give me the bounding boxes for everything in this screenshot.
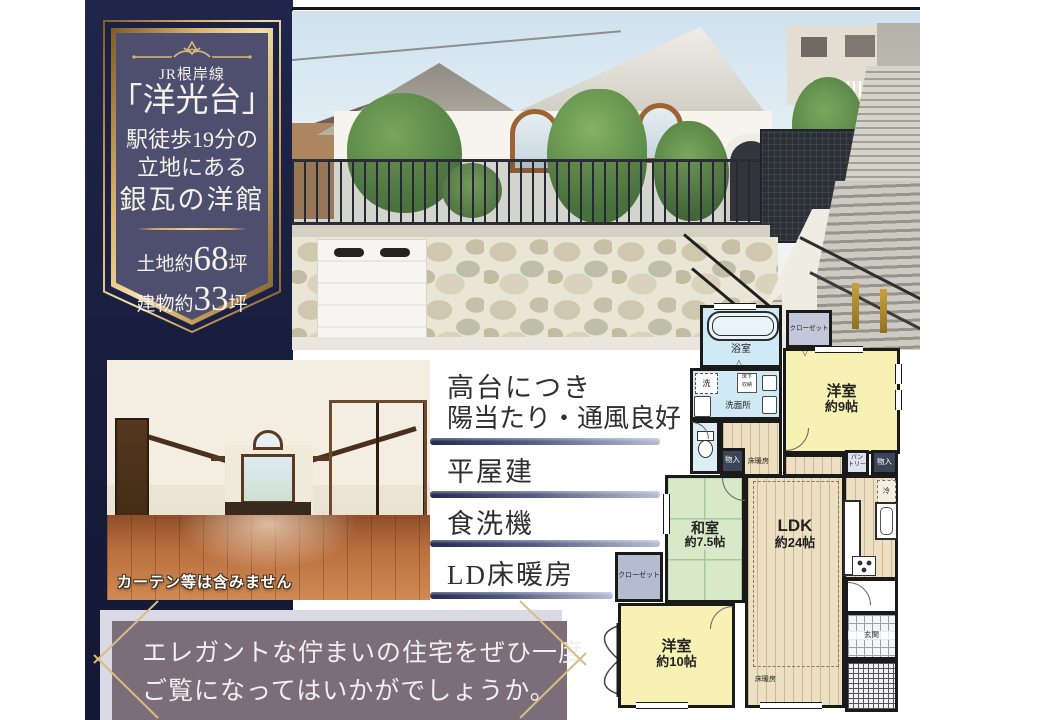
vent-mark: ▽ — [798, 348, 812, 357]
ldk-name: LDK — [745, 516, 845, 536]
building-prefix: 建物約 — [136, 294, 193, 315]
catch-copy: 銀瓦の洋館 — [103, 186, 281, 216]
west9-size: 約9帖 — [786, 400, 897, 415]
ldk-label: LDK 約24帖 — [745, 516, 845, 550]
bathtub-inner — [712, 316, 774, 336]
stove-icon — [852, 556, 876, 576]
garage-vent-shape — [380, 248, 410, 257]
kitchen-sink-unit — [875, 502, 898, 540]
walk-distance-line1: 駅徒歩19分の — [103, 128, 281, 152]
double-door-icon — [587, 623, 621, 697]
pantry-line1: パン — [848, 455, 866, 462]
land-unit: 坪 — [229, 254, 248, 275]
storage-box: 物入 — [720, 448, 745, 474]
west-room-9-label: 洋室 約9帖 — [786, 383, 897, 415]
window-mark — [895, 364, 902, 384]
flyer-canvas: JR根岸線 「洋光台」 駅徒歩19分の 立地にある 銀瓦の洋館 土地約68坪 建… — [0, 0, 1040, 720]
photo-caption: カーテン等は含みません — [117, 571, 293, 592]
washroom-label: 洗面所 — [717, 401, 759, 411]
far-window-shape — [241, 454, 295, 504]
vent-mark: △ — [732, 358, 746, 367]
toilet-bowl-icon — [698, 440, 713, 458]
far-window-shape — [845, 35, 875, 57]
floor-plan: 床暖房 床暖房 LDK 約24帖 浴室 クローゼット 洋室 約9帖 洗 — [590, 298, 908, 720]
station-name: 「洋光台」 — [103, 83, 281, 119]
closet-left-label: クローゼット — [618, 572, 660, 580]
far-window-shape — [801, 37, 827, 57]
closet-top-label: クローゼット — [789, 325, 829, 332]
storage-box: 物入 — [871, 450, 898, 475]
interior-photo: カーテン等は含みません — [107, 360, 430, 600]
underfloor-line1: 床下 — [738, 374, 756, 382]
window-mark — [760, 702, 822, 709]
window-mark — [636, 702, 688, 709]
ldk-size: 約24帖 — [745, 536, 845, 551]
feature-item-4: LD床暖房 — [447, 553, 574, 592]
land-value: 68 — [194, 239, 229, 278]
west-room-10-label: 洋室 約10帖 — [621, 638, 732, 670]
bath-label: 浴室 — [703, 344, 779, 356]
walk-distance-line2: 立地にある — [103, 156, 281, 180]
floor-heating-label: 床暖房 — [748, 458, 808, 466]
washer-icon: 洗 — [695, 373, 718, 394]
west9-name: 洋室 — [786, 383, 897, 400]
feature-item-3: 食洗機 — [447, 502, 534, 541]
underfloor-line2: 収納 — [738, 382, 756, 390]
floor-gloss-shape — [172, 515, 366, 575]
floor-heating-label: 床暖房 — [755, 676, 815, 684]
window-mark — [895, 390, 902, 410]
pantry-line2: トリー — [848, 462, 866, 469]
west10-size: 約10帖 — [621, 655, 732, 670]
west10-name: 洋室 — [621, 638, 732, 655]
fridge-icon: 冷 — [877, 480, 896, 504]
terrace-fence-shape — [292, 159, 764, 225]
building-unit: 坪 — [229, 294, 248, 315]
closet-top: クローゼット — [786, 310, 832, 348]
pantry-label: パン トリー — [848, 455, 866, 469]
title-banner: JR根岸線 「洋光台」 駅徒歩19分の 立地にある 銀瓦の洋館 土地約68坪 建… — [103, 20, 281, 333]
tatami-label: 和室 約7.5帖 — [668, 520, 742, 550]
feature-item-2: 平屋建 — [447, 450, 534, 489]
ornament-icon — [132, 36, 252, 66]
roof-main-shape — [502, 27, 770, 119]
rail-line-label: JR根岸線 — [103, 67, 281, 84]
vanity-icon — [694, 396, 711, 417]
powerline-shape — [292, 30, 621, 61]
underfloor-storage: 床下 収納 — [737, 373, 757, 393]
window-mark — [663, 494, 670, 534]
garage-door-shape — [317, 239, 427, 349]
pantry-box: パン トリー — [845, 450, 869, 475]
window-mark — [815, 346, 863, 353]
building-area: 建物約33坪 — [103, 280, 281, 319]
top-rule — [292, 7, 920, 10]
entrance-porch — [845, 660, 898, 712]
gold-corner-brackets — [88, 597, 592, 720]
sink-icon — [762, 396, 777, 414]
entrance-label: 玄関 — [848, 631, 895, 640]
building-value: 33 — [194, 279, 229, 318]
storage-label: 物入 — [723, 456, 742, 465]
entrance-area: 玄関 — [845, 612, 898, 660]
garage-vent-shape — [334, 248, 364, 257]
gold-divider — [137, 228, 247, 230]
storage-label: 物入 — [874, 458, 895, 467]
floor-heating-zone — [753, 481, 839, 667]
land-area: 土地約68坪 — [103, 240, 281, 279]
window-mark — [714, 303, 756, 310]
sink-basin-icon — [880, 507, 893, 535]
washroom: 洗 床下 収納 洗面所 — [690, 368, 782, 420]
terrace-edge-shape — [292, 225, 770, 237]
tatami-name: 和室 — [668, 520, 742, 536]
tatami-size: 約7.5帖 — [668, 536, 742, 550]
closet-left: クローゼット — [615, 552, 663, 602]
land-prefix: 土地約 — [136, 254, 193, 275]
bathtub-icon — [707, 311, 779, 341]
sink-icon — [762, 375, 777, 391]
